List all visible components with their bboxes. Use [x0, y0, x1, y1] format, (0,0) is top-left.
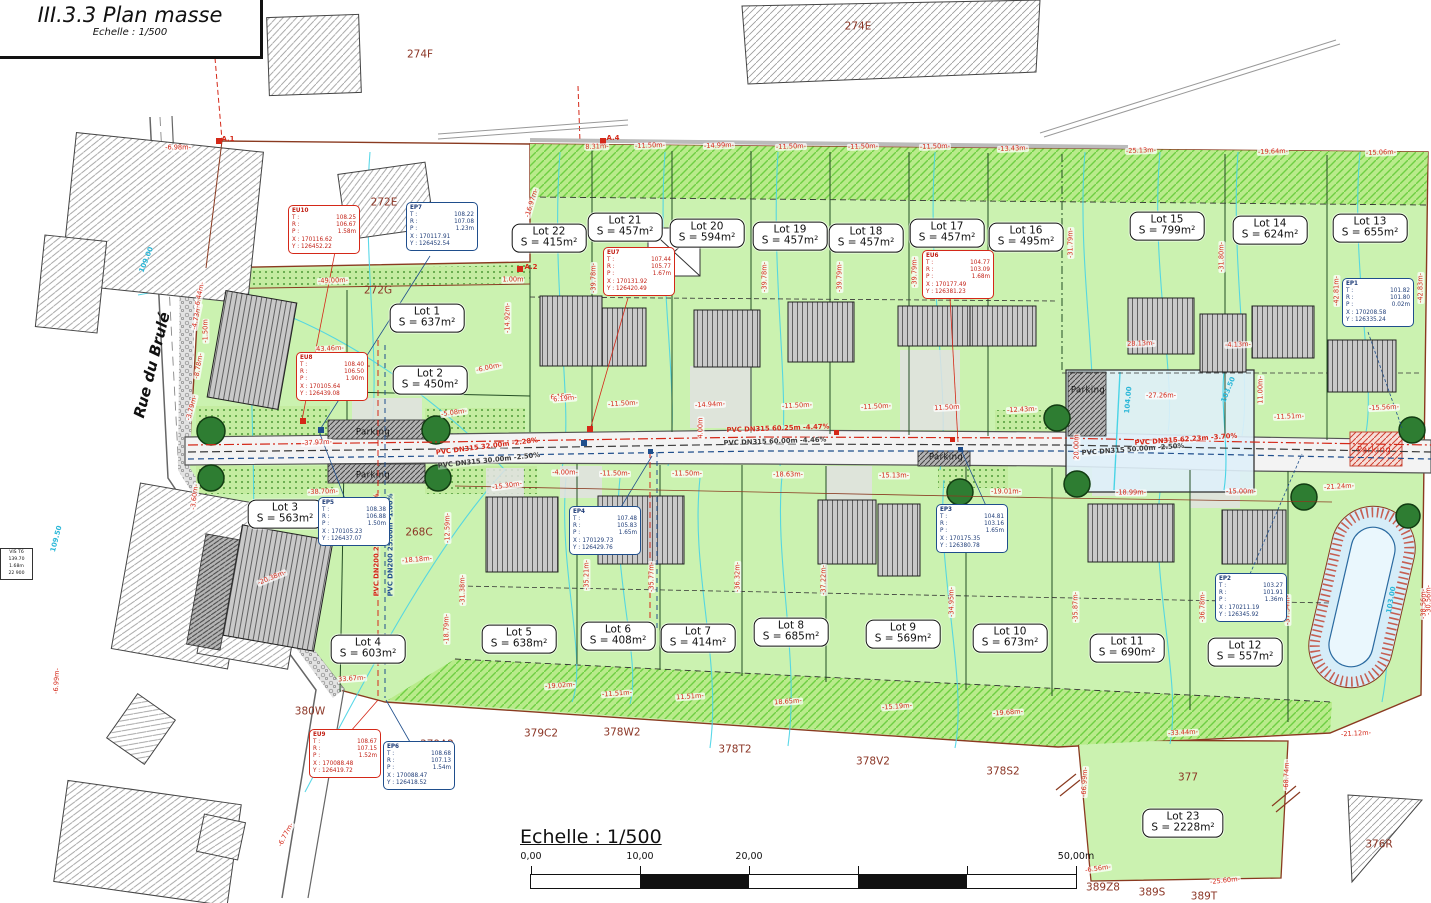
reference-box-line: 1.68m: [1, 564, 32, 571]
site-plan-drawing: [0, 0, 1431, 903]
scale-tick: [749, 866, 750, 874]
crossed-square: [648, 228, 700, 276]
scale-bar-segment: [640, 875, 749, 888]
scale-tick: [967, 866, 968, 874]
scale-bar-segment: [967, 875, 1076, 888]
reference-box-line: 22 900: [1, 571, 32, 578]
scale-label: Echelle : 1/500: [520, 826, 1077, 848]
retention-basin: [1066, 370, 1254, 492]
scale-tick-label: 20,00: [735, 851, 762, 862]
reference-box-line: 139.70: [1, 557, 32, 564]
scale-section: Echelle : 1/500 0,0010,0020,0050,00m: [518, 826, 1077, 889]
reference-box: VIS T6139.701.68m22 900: [0, 548, 33, 580]
scale-tick-label: 0,00: [520, 851, 541, 862]
page-title: III.3.3 Plan masse: [0, 3, 260, 27]
basin-parking: [1068, 372, 1106, 436]
scale-tick-label: 10,00: [626, 851, 653, 862]
plan-masse-canvas: Lot 1S = 637m²Lot 2S = 450m²Lot 3S = 563…: [0, 0, 1431, 903]
scale-tick: [1076, 866, 1077, 874]
scale-bar: 0,0010,0020,0050,00m: [530, 874, 1077, 889]
scale-tick: [858, 866, 859, 874]
lot-23-area: [1078, 740, 1288, 881]
page-subtitle: Echelle : 1/500: [0, 27, 260, 38]
title-block: III.3.3 Plan masse Echelle : 1/500: [0, 0, 263, 59]
scale-bar-segment: [858, 875, 967, 888]
scale-tick: [640, 866, 641, 874]
scale-tick: [531, 866, 532, 874]
reference-box-line: VIS T6: [1, 550, 32, 557]
scale-bar-segment: [749, 875, 858, 888]
scale-tick-label: 50,00m: [1058, 851, 1094, 862]
scale-bar-segment: [531, 875, 640, 888]
